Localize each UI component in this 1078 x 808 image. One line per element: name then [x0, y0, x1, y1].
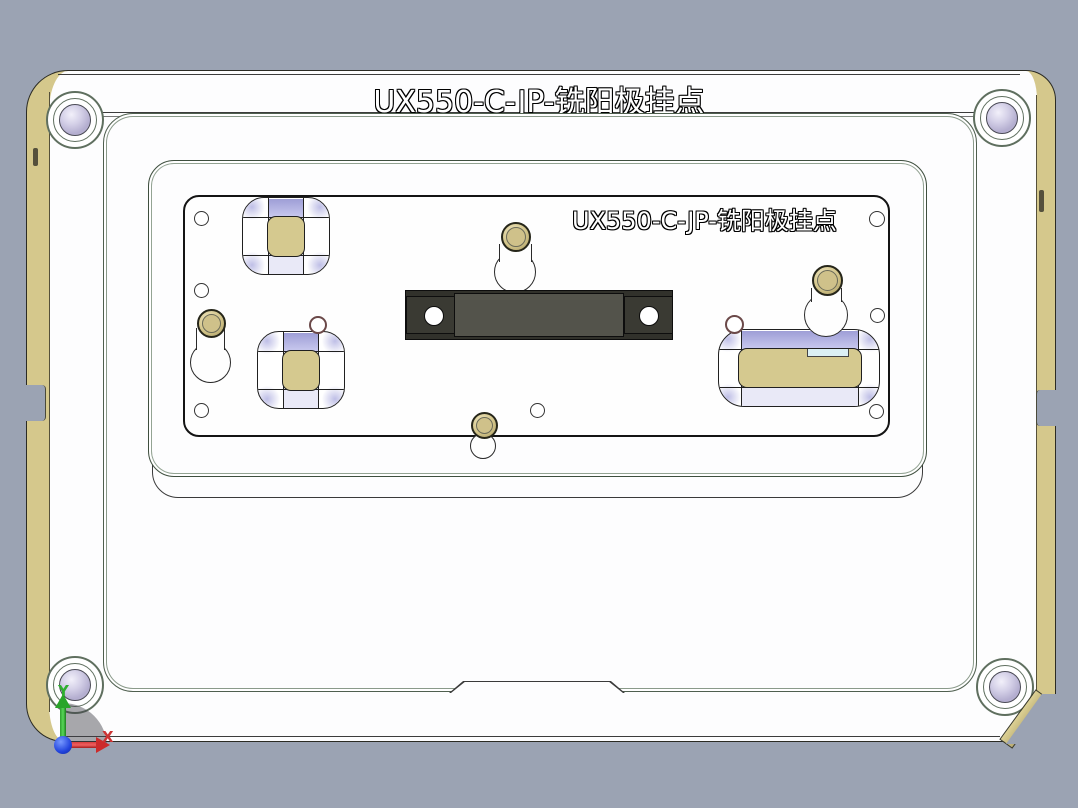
clamp-bar-left-block [406, 296, 455, 334]
clamp-bar[interactable] [405, 290, 673, 340]
edge-mark-right [1039, 190, 1044, 212]
small-hole [530, 403, 545, 418]
clamp-bar-hole [639, 306, 659, 326]
gold-pin-top[interactable] [501, 222, 531, 252]
pocket-bottom-shade [284, 390, 318, 408]
gold-pin-right[interactable] [812, 265, 843, 296]
band-line-top [58, 74, 1020, 75]
y-axis-label: Y [58, 682, 69, 700]
pin-core [476, 417, 493, 434]
small-hole [194, 403, 209, 418]
pocket-bottom-left[interactable] [257, 331, 345, 409]
washer-screw [59, 104, 91, 136]
clamp-bar-center [454, 293, 624, 337]
pocket-top-shade [269, 199, 303, 217]
pocket-top-shade [742, 331, 858, 349]
corner-washer-top-right[interactable] [973, 89, 1031, 147]
pocket-bottom-shade [269, 256, 303, 274]
ring-bushing-right [725, 315, 744, 334]
x-axis-label: X [102, 728, 114, 746]
small-hole [194, 283, 209, 298]
engraved-title: UX550-C-JP-铣阳极挂点 [572, 201, 837, 236]
small-hole [194, 211, 209, 226]
pocket-cyan-notch [807, 349, 849, 357]
small-hole [869, 211, 885, 227]
washer-screw [989, 671, 1021, 703]
clamp-bar-hole [424, 306, 444, 326]
pocket-bottom-shade [742, 388, 858, 406]
pocket-top-left[interactable] [242, 197, 330, 275]
right-wall-notch [1036, 390, 1057, 426]
pocket-insert [282, 350, 320, 391]
plate-bottom-inner-line [60, 736, 1000, 737]
corner-washer-top-left[interactable] [46, 91, 104, 149]
left-wall-edge [49, 92, 50, 712]
gold-pin-left[interactable] [197, 309, 226, 338]
gold-pin-bottom[interactable] [471, 412, 498, 439]
pocket-right[interactable] [718, 329, 880, 407]
left-wall-notch [25, 385, 46, 421]
pin-core [817, 270, 838, 291]
small-hole [870, 308, 885, 323]
pocket-top-shade [284, 333, 318, 351]
pin-core [202, 314, 221, 333]
bottom-tab [449, 681, 625, 693]
pin-core [506, 227, 526, 247]
small-hole [869, 404, 884, 419]
pocket-insert [267, 216, 305, 257]
clamp-bar-right-block [624, 296, 673, 334]
edge-mark-left [33, 148, 38, 166]
ring-bushing-left [309, 316, 327, 334]
cad-viewport[interactable]: UX550-C-JP-铣阳极挂点 [0, 0, 1078, 808]
origin-sphere [54, 736, 72, 754]
washer-screw [986, 102, 1018, 134]
